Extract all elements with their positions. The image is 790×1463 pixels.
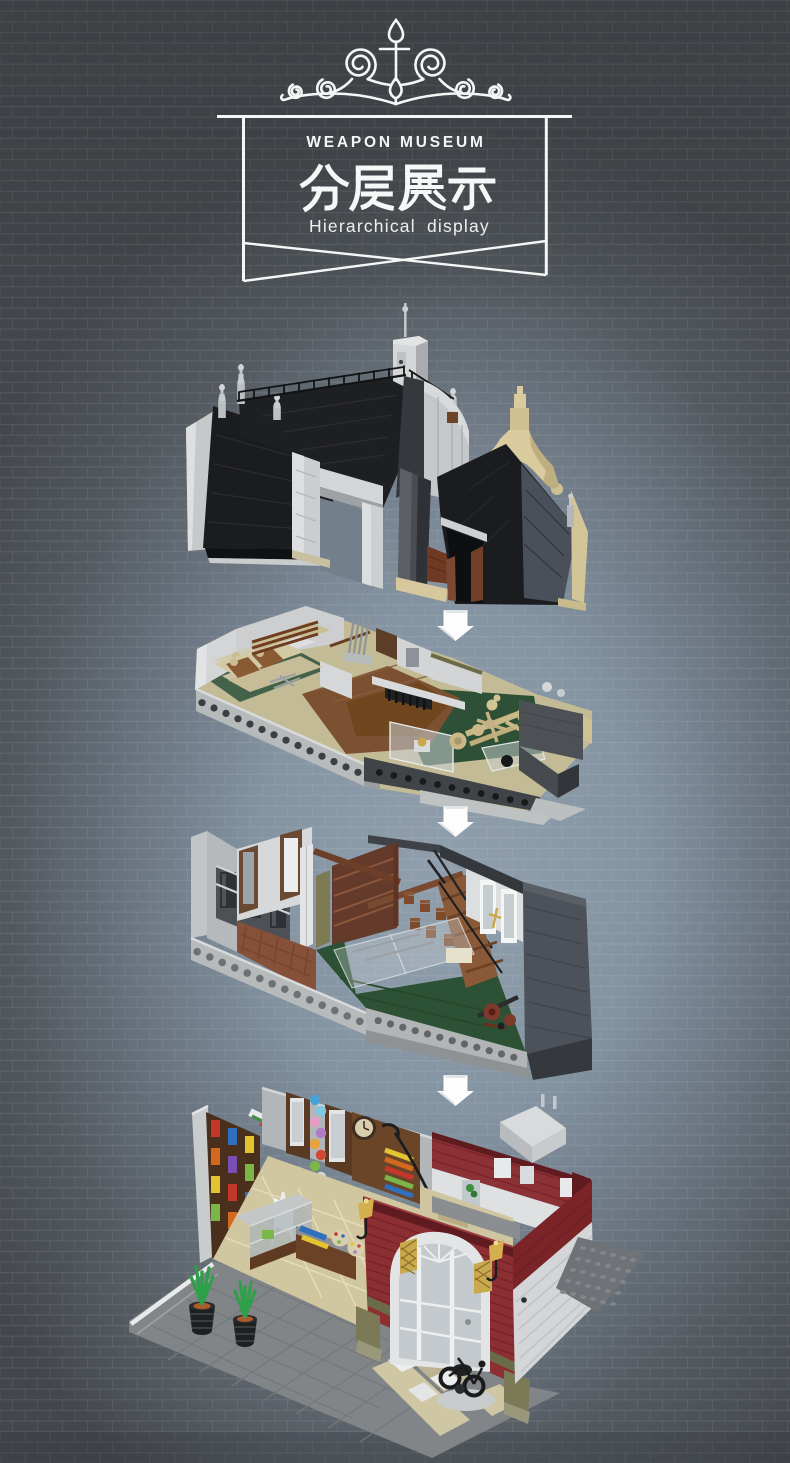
svg-text:Hierarchical: Hierarchical [309, 216, 416, 236]
svg-text:WEAPON MUSEUM: WEAPON MUSEUM [306, 134, 485, 151]
svg-text:display: display [427, 216, 490, 236]
